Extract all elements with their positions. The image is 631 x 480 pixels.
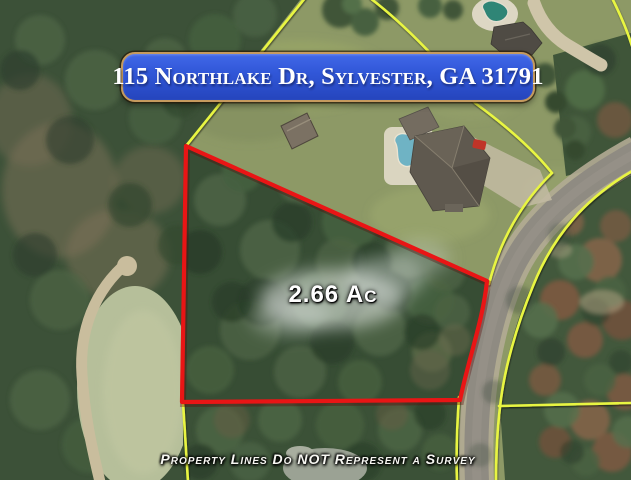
map-viewport: 115 Northlake Dr, Sylvester, GA 31791 2.… [0, 0, 631, 480]
address-banner: 115 Northlake Dr, Sylvester, GA 31791 [121, 52, 535, 102]
address-label: 115 Northlake Dr, Sylvester, GA 31791 [112, 63, 543, 91]
survey-disclaimer: Property Lines Do NOT Represent a Survey [146, 451, 490, 467]
forest-below-property [182, 398, 459, 480]
acreage-label: 2.66 Ac [258, 281, 408, 309]
